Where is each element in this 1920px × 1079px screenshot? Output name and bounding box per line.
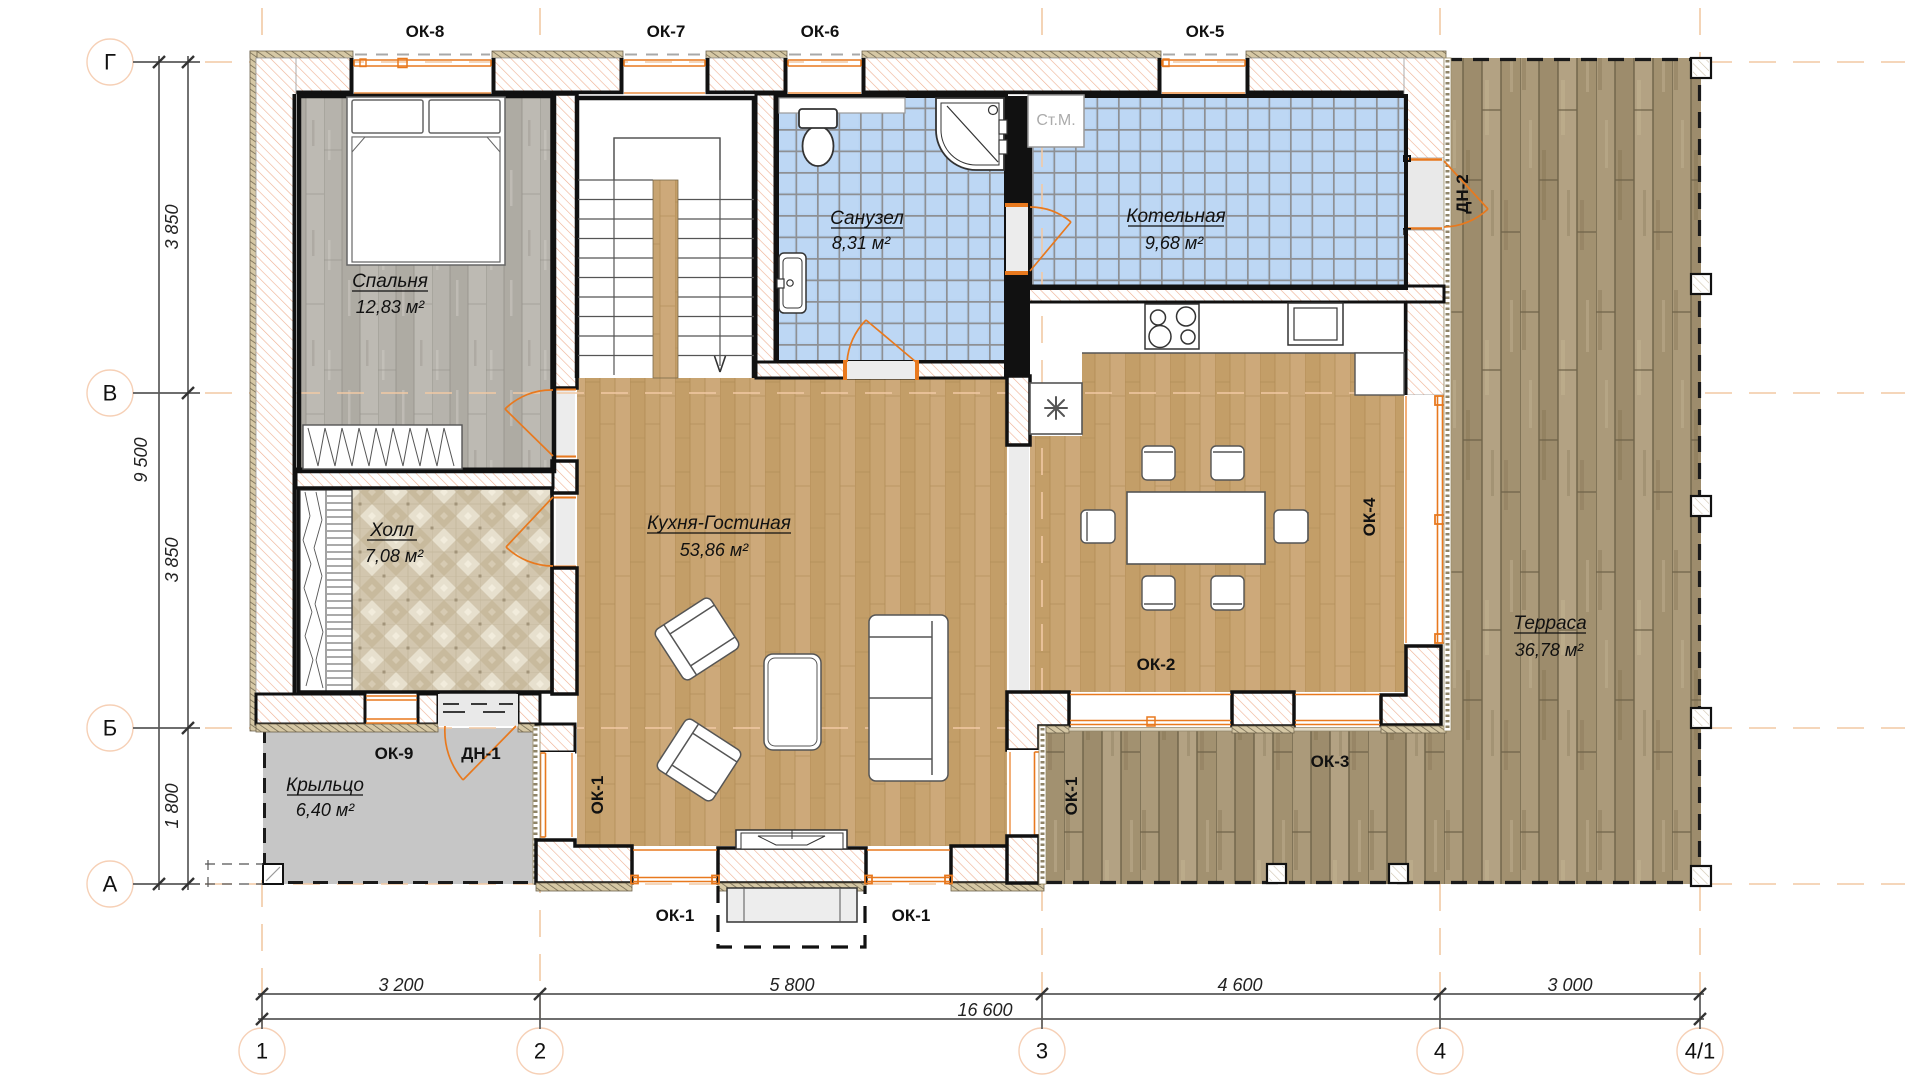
svg-text:Кухня-Гостиная: Кухня-Гостиная [647, 513, 791, 534]
svg-text:7,08 м²: 7,08 м² [365, 546, 424, 566]
svg-text:Г: Г [104, 50, 116, 75]
svg-text:ОК-4: ОК-4 [1360, 497, 1379, 536]
svg-text:ОК-2: ОК-2 [1137, 655, 1176, 674]
svg-text:Санузел: Санузел [830, 208, 904, 229]
svg-text:9,68 м²: 9,68 м² [1145, 233, 1204, 253]
svg-text:3 850: 3 850 [162, 204, 182, 249]
svg-text:В: В [103, 381, 118, 406]
svg-text:1: 1 [256, 1039, 268, 1064]
svg-text:ОК-1: ОК-1 [892, 906, 931, 925]
svg-text:9 500: 9 500 [131, 437, 151, 482]
svg-text:5 800: 5 800 [769, 975, 814, 995]
svg-text:ДН-2: ДН-2 [1453, 174, 1472, 214]
svg-text:1 800: 1 800 [162, 783, 182, 828]
svg-text:ОК-9: ОК-9 [375, 744, 414, 763]
svg-text:А: А [103, 872, 118, 897]
svg-text:4 600: 4 600 [1217, 975, 1262, 995]
svg-text:ОК-5: ОК-5 [1186, 22, 1225, 41]
svg-text:36,78 м²: 36,78 м² [1515, 640, 1584, 660]
svg-text:Терраса: Терраса [1513, 613, 1586, 634]
svg-text:Крыльцо: Крыльцо [286, 775, 364, 796]
svg-text:12,83 м²: 12,83 м² [356, 297, 425, 317]
svg-text:ОК-1: ОК-1 [588, 776, 607, 815]
svg-text:3 850: 3 850 [162, 537, 182, 582]
svg-text:ОК-6: ОК-6 [801, 22, 840, 41]
svg-text:ДН-1: ДН-1 [461, 744, 501, 763]
svg-text:3 200: 3 200 [378, 975, 423, 995]
svg-text:3: 3 [1036, 1039, 1048, 1064]
svg-text:Холл: Холл [369, 520, 414, 541]
svg-text:ОК-1: ОК-1 [656, 906, 695, 925]
svg-text:Котельная: Котельная [1126, 206, 1225, 227]
svg-text:Б: Б [103, 716, 117, 741]
svg-text:ОК-3: ОК-3 [1311, 752, 1350, 771]
svg-text:Ст.М.: Ст.М. [1036, 112, 1075, 129]
svg-text:3 000: 3 000 [1547, 975, 1592, 995]
svg-text:2: 2 [534, 1039, 546, 1064]
svg-text:4/1: 4/1 [1685, 1039, 1716, 1064]
svg-text:6,40 м²: 6,40 м² [296, 800, 355, 820]
svg-text:ОК-1: ОК-1 [1062, 777, 1081, 816]
svg-text:53,86 м²: 53,86 м² [680, 540, 749, 560]
svg-text:Спальня: Спальня [352, 271, 428, 292]
svg-text:ОК-7: ОК-7 [647, 22, 686, 41]
svg-text:ОК-8: ОК-8 [406, 22, 445, 41]
svg-text:8,31 м²: 8,31 м² [832, 233, 891, 253]
svg-text:4: 4 [1434, 1039, 1446, 1064]
svg-text:16 600: 16 600 [957, 1000, 1012, 1020]
